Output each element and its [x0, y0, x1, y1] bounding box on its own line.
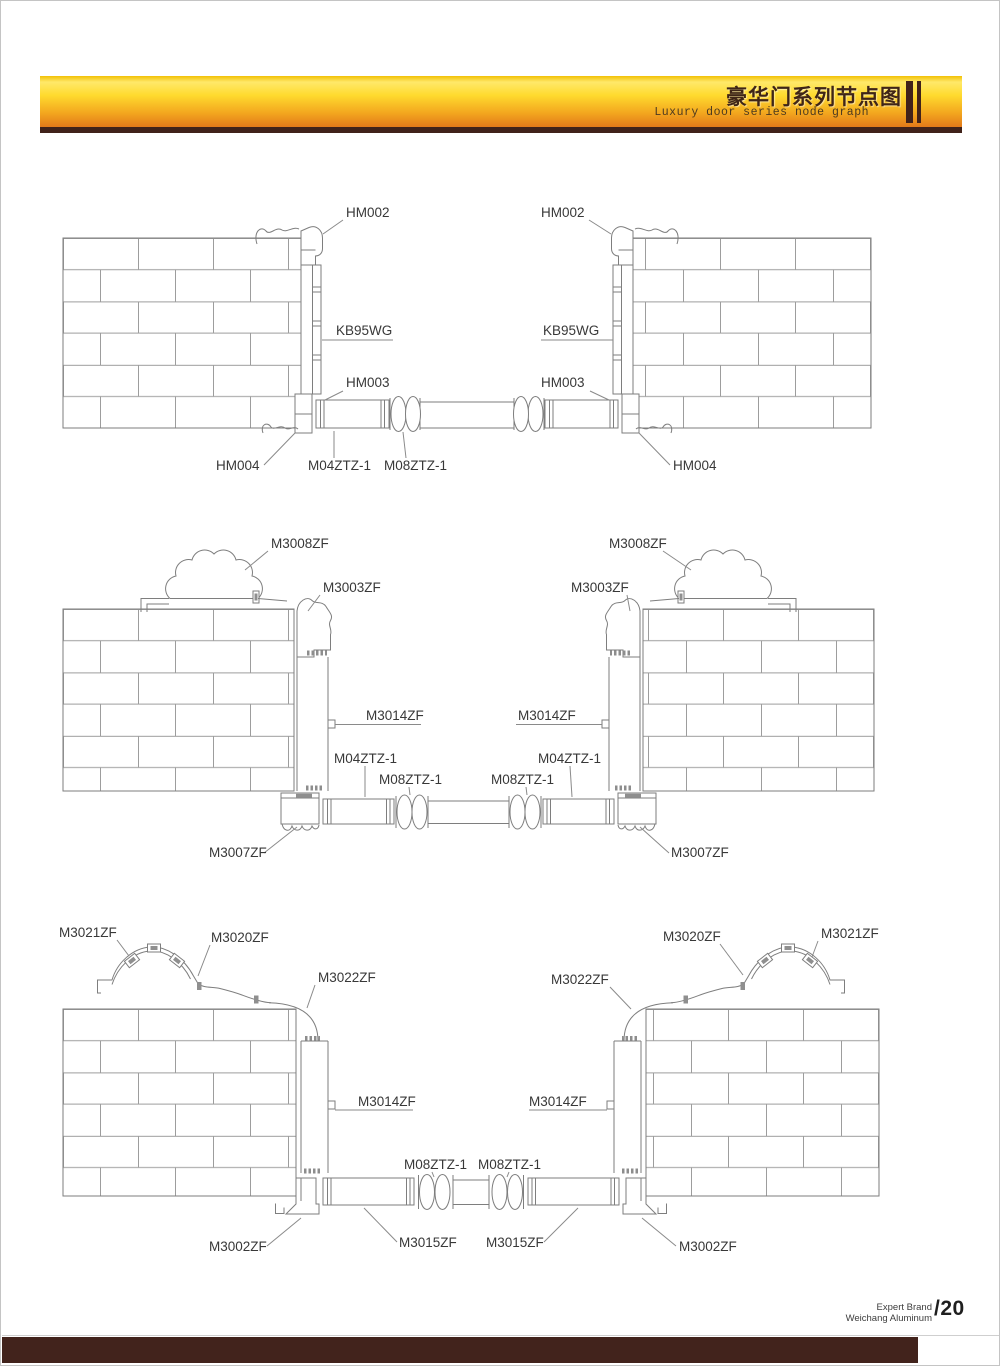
label-m3021zf-left: M3021ZF — [59, 925, 117, 940]
label-m04ztz-d2-left: M04ZTZ-1 — [334, 751, 397, 766]
label-kb95wg-left: KB95WG — [336, 323, 392, 338]
diagram2-right-assembly — [429, 550, 875, 830]
diagram-3-curved-arch-section: M3021ZF M3021ZF M3020ZF M3020ZF M3022ZF … — [59, 925, 879, 1254]
diagram-1-flat-head-section: HM002 HM002 KB95WG KB95WG HM003 HM003 HM… — [63, 205, 871, 473]
diagram2-left-assembly — [63, 550, 509, 830]
footer-divider-line — [2, 1335, 999, 1336]
label-hm004-right: HM004 — [673, 458, 717, 473]
diagram1-right-assembly — [421, 227, 871, 433]
label-m08ztz-d3-right: M08ZTZ-1 — [478, 1157, 541, 1172]
label-m3014zf-d2-left: M3014ZF — [366, 708, 424, 723]
label-m08ztz-d2-right: M08ZTZ-1 — [491, 772, 554, 787]
label-m04ztz-d2-right: M04ZTZ-1 — [538, 751, 601, 766]
diagram3-left-assembly — [63, 944, 489, 1214]
footer-brown-bar — [2, 1337, 918, 1363]
label-m3003zf-left: M3003ZF — [323, 580, 381, 595]
label-m3021zf-right: M3021ZF — [821, 926, 879, 941]
node-diagrams-canvas: HM002 HM002 KB95WG KB95WG HM003 HM003 HM… — [1, 1, 1000, 1366]
label-m3014zf-d3-left: M3014ZF — [358, 1094, 416, 1109]
label-m04ztz-d1: M04ZTZ-1 — [308, 458, 371, 473]
footer-brand: Expert Brand Weichang Aluminum — [632, 1302, 932, 1324]
label-hm002-left: HM002 — [346, 205, 390, 220]
footer-page-number: /20 — [934, 1297, 965, 1321]
label-kb95wg-right: KB95WG — [543, 323, 599, 338]
label-m3014zf-d3-right: M3014ZF — [529, 1094, 587, 1109]
label-hm004-left: HM004 — [216, 458, 260, 473]
label-m3020zf-right: M3020ZF — [663, 929, 721, 944]
diagram-2-scallop-arch-section: M3008ZF M3008ZF M3003ZF M3003ZF M3014ZF … — [63, 536, 874, 860]
label-m3015zf-left: M3015ZF — [399, 1235, 457, 1250]
label-m08ztz-d3-left: M08ZTZ-1 — [404, 1157, 467, 1172]
footer-brand-line1: Expert Brand — [632, 1302, 932, 1313]
label-m3007zf-right: M3007ZF — [671, 845, 729, 860]
label-hm003-left: HM003 — [346, 375, 390, 390]
label-m3008zf-left: M3008ZF — [271, 536, 329, 551]
label-m3002zf-left: M3002ZF — [209, 1239, 267, 1254]
label-hm002-right: HM002 — [541, 205, 585, 220]
label-m3022zf-left: M3022ZF — [318, 970, 376, 985]
label-m3015zf-right: M3015ZF — [486, 1235, 544, 1250]
label-m3002zf-right: M3002ZF — [679, 1239, 737, 1254]
label-m3020zf-left: M3020ZF — [211, 930, 269, 945]
footer-brand-line2: Weichang Aluminum — [632, 1313, 932, 1324]
diagram3-right-assembly — [453, 944, 879, 1214]
label-m08ztz-d1: M08ZTZ-1 — [384, 458, 447, 473]
label-m3007zf-left: M3007ZF — [209, 845, 267, 860]
label-m3003zf-right: M3003ZF — [571, 580, 629, 595]
catalog-page: 豪华门系列节点图 Luxury door series node graph — [0, 0, 1000, 1366]
label-m3014zf-d2-right: M3014ZF — [518, 708, 576, 723]
label-hm003-right: HM003 — [541, 375, 585, 390]
label-m08ztz-d2-left: M08ZTZ-1 — [379, 772, 442, 787]
label-m3022zf-right: M3022ZF — [551, 972, 609, 987]
label-m3008zf-right: M3008ZF — [609, 536, 667, 551]
